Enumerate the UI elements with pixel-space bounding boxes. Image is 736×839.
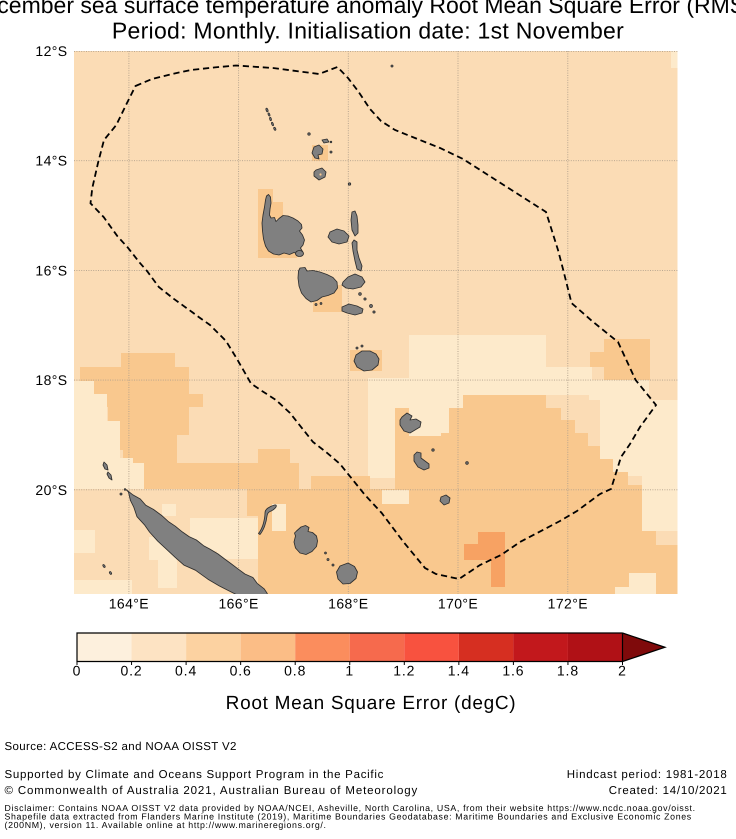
svg-text:Supported by Climate and Ocean: Supported by Climate and Oceans Support … [5,769,385,781]
svg-text:18°S: 18°S [35,372,67,388]
svg-text:Period: Monthly. Initialisatio: Period: Monthly. Initialisation date: 1s… [112,18,624,44]
svg-text:0: 0 [73,663,82,679]
svg-text:1: 1 [345,663,354,679]
svg-text:Hindcast period: 1981-2018: Hindcast period: 1981-2018 [567,769,728,781]
svg-text:20°S: 20°S [35,482,67,498]
svg-text:1.4: 1.4 [448,663,470,679]
svg-text:2: 2 [618,663,627,679]
svg-text:Created: 14/10/2021: Created: 14/10/2021 [609,785,728,797]
svg-text:Source: ACCESS-S2 and NOAA OIS: Source: ACCESS-S2 and NOAA OISST V2 [5,741,237,753]
svg-text:Root Mean Square Error (degC): Root Mean Square Error (degC) [226,693,517,714]
svg-text:December sea surface temperatu: December sea surface temperature anomaly… [0,0,736,18]
svg-text:0.4: 0.4 [175,663,197,679]
svg-text:0.8: 0.8 [284,663,306,679]
svg-text:166°E: 166°E [218,595,258,611]
svg-text:1.6: 1.6 [502,663,524,679]
svg-text:170°E: 170°E [438,595,478,611]
svg-text:0.2: 0.2 [120,663,142,679]
svg-text:16°S: 16°S [35,262,67,278]
svg-text:172°E: 172°E [548,595,588,611]
svg-text:1.2: 1.2 [393,663,415,679]
svg-text:168°E: 168°E [328,595,368,611]
svg-text:1.8: 1.8 [557,663,579,679]
svg-text:© Commonwealth of Australia 20: © Commonwealth of Australia 2021, Austra… [5,785,419,797]
svg-text:164°E: 164°E [109,595,149,611]
svg-text:12°S: 12°S [35,43,67,59]
svg-text:0.6: 0.6 [230,663,252,679]
svg-text:14°S: 14°S [35,153,67,169]
svg-text:(200NM), version 11. Available: (200NM), version 11. Available online at… [5,820,327,830]
